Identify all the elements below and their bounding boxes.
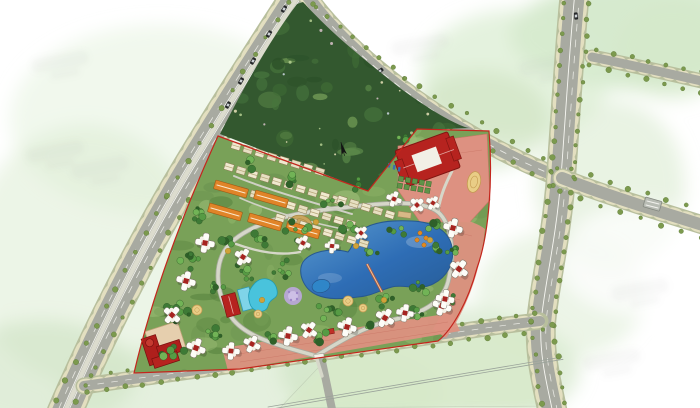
street-tree [572,175,576,179]
site-tree [251,230,259,238]
street-tree [562,401,566,405]
street-tree [562,1,566,5]
street-tree [534,290,538,294]
site-tree [245,160,250,165]
site-plan-image [0,0,700,408]
street-tree [209,123,214,128]
site-tree [196,256,201,261]
street-tree [594,48,598,52]
site-tree [262,241,269,248]
site-tree [390,296,395,301]
street-tree [538,245,542,249]
street-tree [101,349,105,353]
site-tree [320,315,326,321]
street-tree [267,365,271,369]
street-tree [536,384,540,388]
parasol [415,238,419,242]
street-tree [229,370,234,375]
street-tree [54,398,59,403]
street-tree [485,335,491,341]
street-tree [550,171,554,175]
street-tree [491,149,496,154]
street-tree [286,362,290,366]
street-tree [165,230,170,235]
site-tree [346,221,353,228]
street-tree [154,211,158,215]
street-tree [376,350,380,354]
site-tree [248,165,256,173]
street-tree [581,64,585,68]
street-tree [555,166,559,170]
street-tree [231,88,235,92]
street-tree [84,384,88,388]
street-tree [85,390,90,395]
street-tree [144,231,149,236]
street-tree [577,97,582,102]
accent-tree [259,297,265,303]
street-tree [561,16,565,20]
street-tree [559,266,563,270]
garden-plaza [192,305,202,315]
accent-tree [313,219,319,225]
street-tree [104,304,109,309]
site-tree [409,284,417,292]
street-tree [679,229,684,234]
street-tree [449,103,454,108]
street-tree [534,353,538,357]
site-tree [422,289,429,296]
site-tree [282,228,289,235]
site-tree [278,268,282,272]
street-tree [552,139,557,144]
street-tree [539,401,545,407]
site-tree [218,236,226,244]
street-tree [584,50,588,54]
street-tree [682,67,686,71]
street-tree [558,371,562,375]
street-tree [625,186,631,192]
site-tree [177,257,184,264]
site-tree [288,218,295,225]
street-tree [149,266,153,270]
street-tree [529,319,534,324]
site-tree [426,226,432,232]
street-tree [526,148,530,152]
street-tree [568,205,573,210]
street-tree [556,354,562,360]
site-tree [188,266,193,271]
street-tree [558,48,563,53]
street-tree [588,172,593,177]
street-tree [578,196,584,202]
street-tree [626,73,630,77]
site-tree [399,226,404,231]
street-tree [549,155,555,161]
site-tree [212,324,220,332]
site-tree [326,199,330,203]
accent-tree [427,237,433,243]
street-tree [111,332,116,337]
street-tree [195,374,200,379]
street-tree [126,369,130,373]
site-tree [331,198,335,202]
street-tree [560,386,564,390]
garden-plaza [343,296,353,306]
site-tree [324,307,329,312]
street-tree [497,316,501,320]
street-tree [565,219,570,224]
street-tree [323,359,327,363]
street-tree [377,55,381,59]
street-tree [219,105,225,111]
site-tree [357,177,361,181]
street-tree [250,368,254,372]
site-tree [397,135,401,139]
street-tree [276,18,281,23]
street-tree [576,113,580,117]
street-tree [618,209,623,214]
site-tree [280,261,285,266]
street-tree [608,180,613,185]
street-tree [681,87,685,91]
site-tree [187,313,191,317]
street-tree [133,250,137,254]
street-tree [213,372,218,377]
street-tree [177,215,181,219]
street-tree [510,139,515,144]
street-tree [417,83,422,88]
site-tree [286,181,293,188]
site-tree [284,258,289,263]
street-tree [554,109,558,113]
street-tree [159,380,164,385]
site-tree [414,307,420,313]
site-tree [303,227,308,232]
site-tree [289,171,296,178]
site-tree [192,216,197,221]
street-tree [573,160,577,164]
site-tree [366,321,374,329]
site-tree [338,225,346,233]
site-tree [338,202,344,208]
street-tree [662,82,666,86]
street-tree [522,331,527,336]
street-tree [535,369,539,373]
street-tree [599,204,603,208]
site-tree [244,265,251,272]
street-tree [339,25,343,29]
parasol [418,231,422,235]
site-tree [199,213,206,220]
site-tree [367,249,374,256]
street-tree [62,378,68,384]
street-tree [544,214,548,218]
street-tree [478,318,483,323]
street-tree [123,268,127,272]
street-tree [557,63,561,67]
street-tree [557,79,561,83]
street-tree [394,348,399,353]
site-tree [387,227,393,233]
site-tree [379,304,385,310]
street-tree [531,306,535,310]
street-tree [140,383,145,388]
street-tree [547,184,552,189]
street-tree [646,191,650,195]
street-tree [639,216,643,220]
street-tree [554,310,558,314]
street-tree [644,76,650,82]
street-tree [73,359,78,364]
street-tree [164,193,169,198]
street-tree [530,171,535,176]
site-tree [167,346,175,354]
street-tree [364,45,369,50]
street-tree [664,63,668,67]
street-tree [240,69,245,74]
street-tree [606,67,612,73]
street-tree [514,314,518,318]
street-tree [176,176,180,180]
street-tree [502,333,507,338]
street-tree [448,341,453,346]
street-tree [541,328,545,332]
site-tree [335,309,342,316]
street-tree [575,129,580,134]
site-tree [212,281,216,285]
street-tree [569,167,573,171]
site-tree [416,280,420,284]
site-tree [212,331,218,337]
street-tree [84,341,89,346]
street-tree [574,143,578,147]
street-tree [431,344,435,348]
street-tree [630,54,635,59]
site-tree [416,288,420,292]
site-tree [437,248,443,254]
street-tree [480,120,484,124]
street-tree [175,377,180,382]
street-tree [531,336,535,340]
street-tree [158,248,162,252]
site-tree [283,274,289,280]
street-tree [646,59,650,63]
street-tree [586,1,591,6]
site-tree [450,248,454,252]
street-tree [130,300,135,305]
site-tree [189,252,193,256]
street-tree [391,65,396,70]
street-tree [89,374,93,378]
street-tree [532,311,537,316]
street-tree [350,35,354,39]
site-tree [159,352,167,360]
street-tree [94,366,98,370]
street-tree [121,316,125,320]
site-tree [221,285,226,290]
street-tree [186,158,192,164]
street-tree [611,51,616,56]
street-tree [564,235,568,239]
street-tree [104,387,109,392]
street-tree [511,160,516,165]
street-tree [541,156,545,160]
site-tree [375,251,379,255]
street-tree [73,399,79,405]
street-tree [658,223,664,229]
street-tree [545,199,551,205]
street-tree [554,295,558,299]
street-tree [112,287,118,293]
site-tree [250,277,254,281]
street-tree [536,260,541,265]
street-tree [433,95,437,99]
master-plan-svg [0,0,700,408]
garden-plaza [254,310,262,318]
lavender-garden [284,287,302,305]
street-tree [198,141,202,145]
accent-tree [353,243,359,249]
street-tree [94,323,99,328]
street-tree [554,125,558,129]
street-tree [555,93,559,97]
street-tree [663,197,668,202]
garden-plaza [359,304,367,312]
street-tree [139,281,144,286]
street-tree [123,384,128,389]
accent-tree [225,248,231,254]
street-tree [552,339,557,344]
street-tree [359,353,363,357]
site-tree [420,312,424,316]
street-tree [557,278,562,283]
site-tree [433,242,439,248]
street-tree [467,337,471,341]
site-tree [445,250,449,254]
street-tree [287,0,292,5]
street-tree [550,322,556,328]
site-tree [322,329,329,336]
street-tree [584,34,589,39]
street-tree [568,190,573,195]
car [574,12,578,20]
site-tree [193,209,199,215]
site-tree [206,329,211,334]
street-tree [539,228,545,234]
accent-tree [381,297,387,303]
street-tree [325,14,329,18]
street-tree [584,17,589,22]
street-tree [557,189,562,194]
street-tree [684,203,688,207]
street-tree [494,128,500,134]
site-tree [213,284,219,290]
site-tree [270,338,277,345]
street-tree [562,250,566,254]
street-tree [465,111,469,115]
street-tree [581,80,585,84]
street-tree [460,322,464,326]
street-tree [403,77,407,81]
parasol [422,243,426,247]
site-tree [429,219,437,227]
street-tree [535,276,540,281]
site-tree [262,236,267,241]
street-tree [560,32,564,36]
site-tree [218,334,222,338]
site-tree [272,271,276,275]
street-tree [253,52,257,56]
street-tree [109,371,113,375]
site-tree [316,303,322,309]
street-tree [314,5,318,9]
site-tree [401,231,407,237]
site-tree [315,338,323,346]
site-tree [244,276,249,281]
street-tree [587,63,591,67]
site-tree [293,227,297,231]
